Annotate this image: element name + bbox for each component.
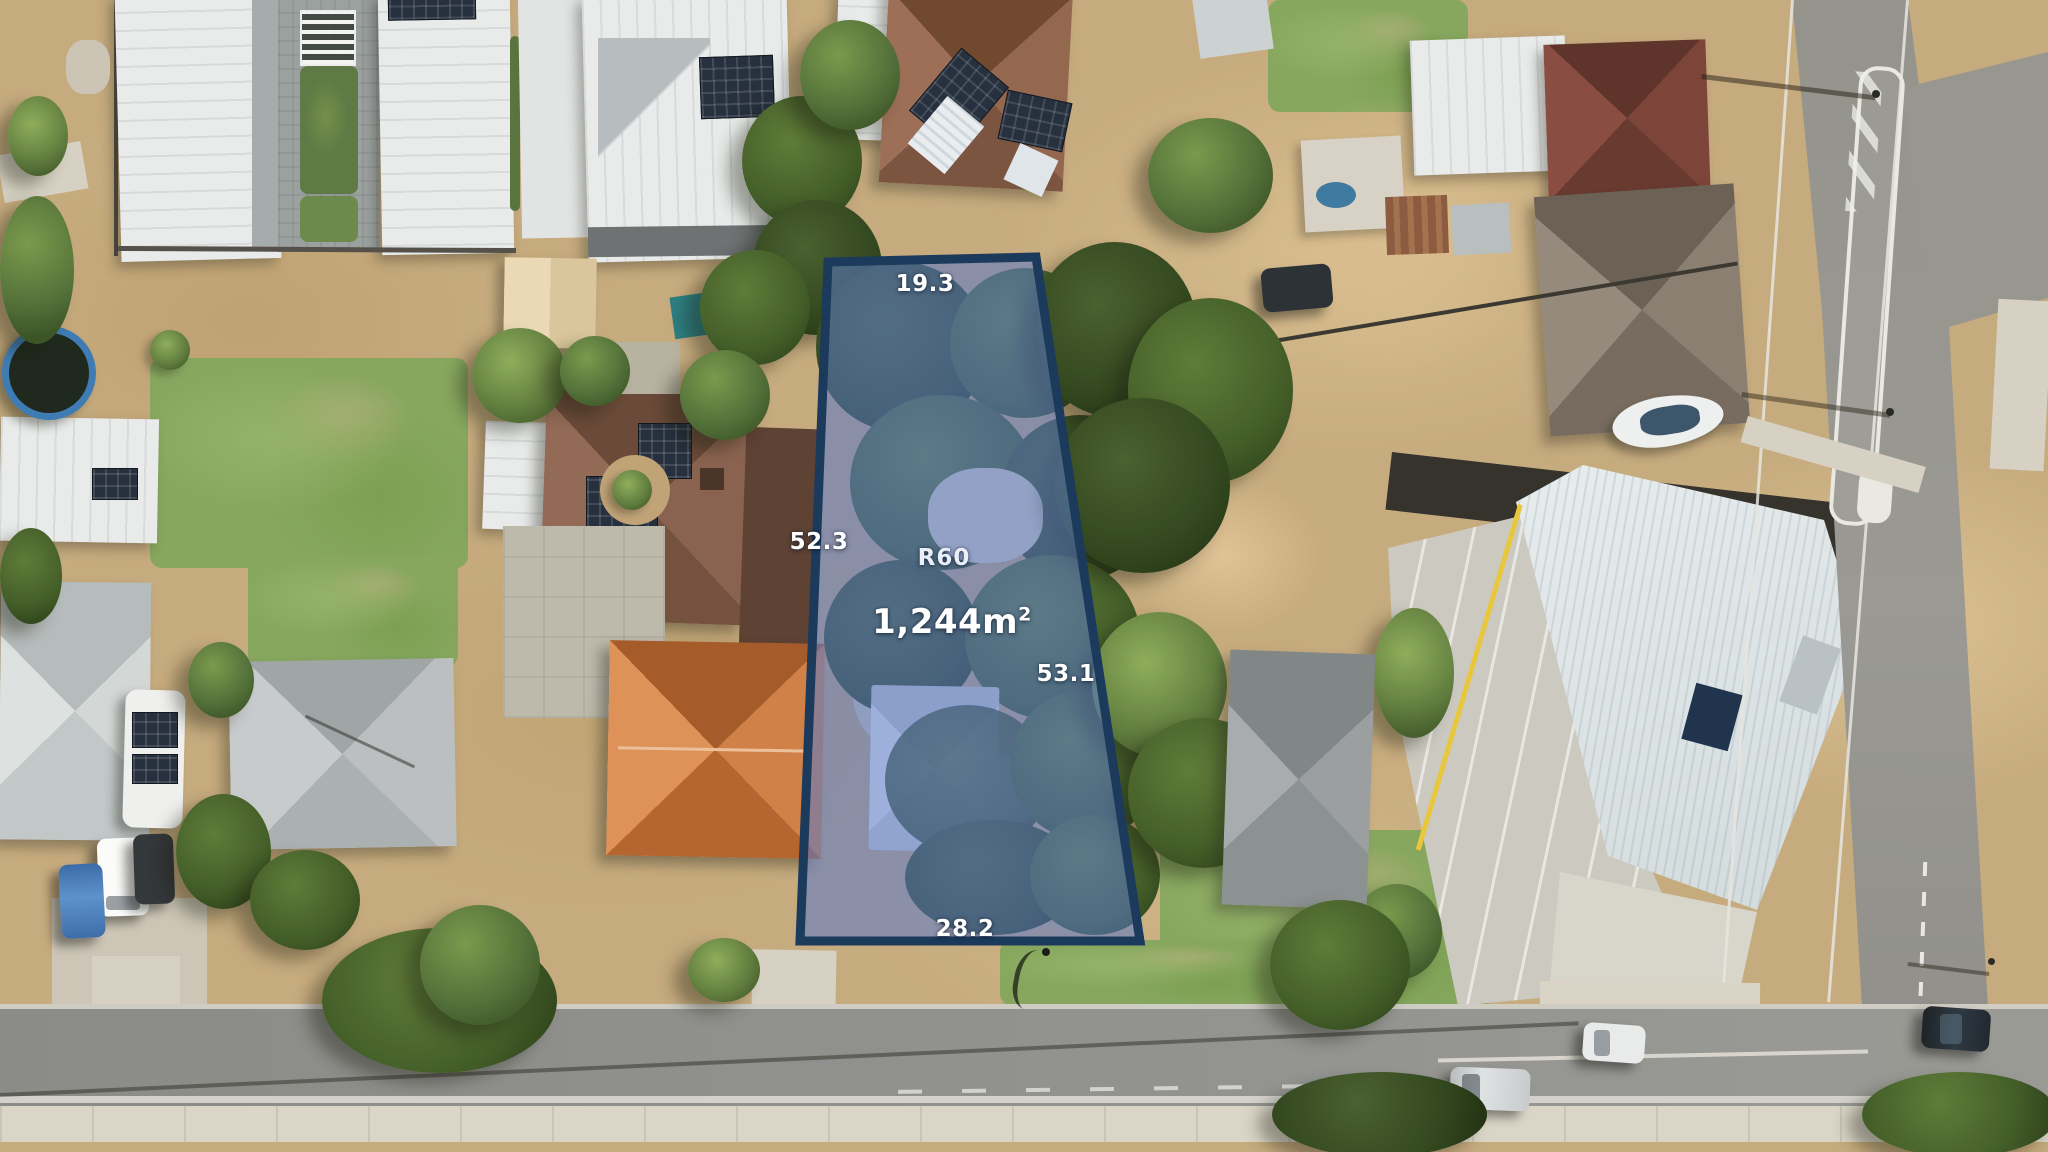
lot-dimension-bottom: 28.2: [936, 916, 995, 942]
lot-area-label: 1,244m2: [872, 602, 1032, 642]
lot-dimension-left: 52.3: [790, 529, 849, 555]
lot-dimension-top: 19.3: [896, 271, 955, 297]
lot-zoning-label: R60: [918, 545, 971, 571]
lot-boundary-overlay: [0, 0, 2048, 1152]
lot-area-value: 1,244m: [872, 602, 1018, 642]
lot-area-superscript: 2: [1018, 604, 1032, 626]
aerial-photo: 19.3 52.3 R60 1,244m2 53.1 28.2: [0, 0, 2048, 1152]
lot-dimension-right: 53.1: [1037, 661, 1096, 687]
